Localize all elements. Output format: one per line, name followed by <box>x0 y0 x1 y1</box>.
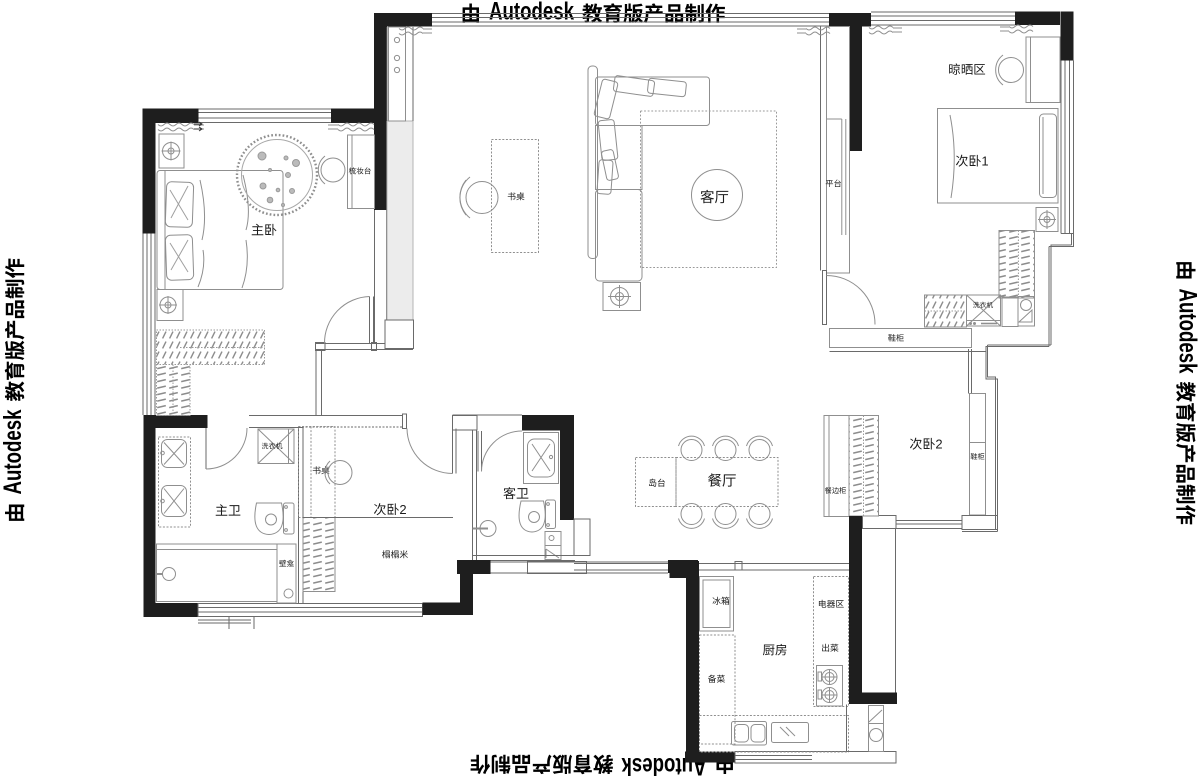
svg-text:2: 2 <box>935 437 942 452</box>
svg-text:Autodesk: Autodesk <box>0 409 27 494</box>
svg-text:Autodesk: Autodesk <box>1173 289 1200 374</box>
svg-text:1: 1 <box>981 154 988 169</box>
svg-text:2: 2 <box>399 502 406 517</box>
